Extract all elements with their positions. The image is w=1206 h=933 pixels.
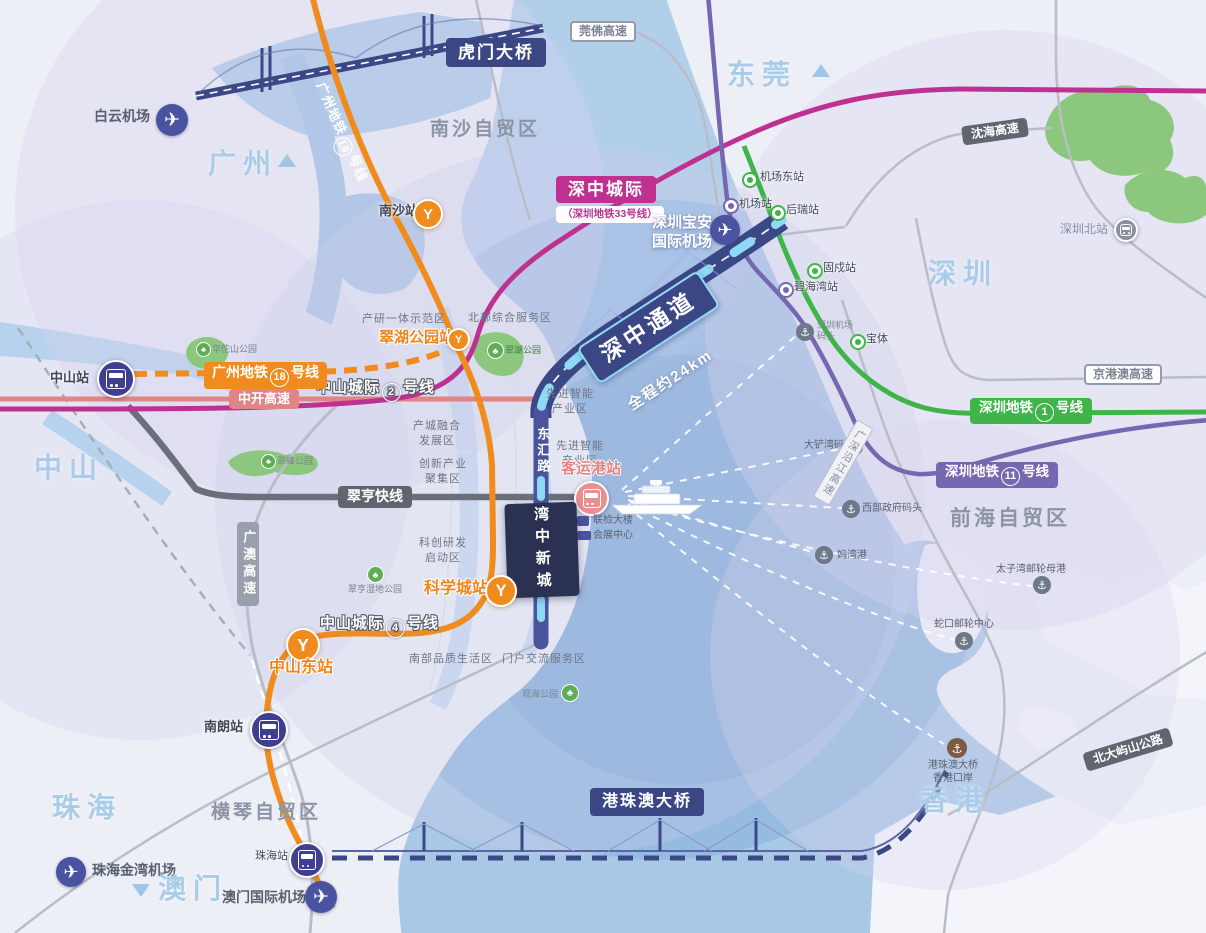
train-icon [1114,218,1138,242]
station-label-nanlang: 南朗站 [204,719,243,735]
landmark-label-convention-center: 会展中心 [593,530,633,543]
building-icon [577,531,591,540]
park-label-guanhai: 观海公园 [522,689,558,700]
station-label-airport: 机场站 [739,198,772,212]
jinggangao-expressway-badge: 京港澳高速 [1084,364,1162,385]
station-label-science-city: 科学城站 [424,579,488,599]
park-label-cuiheng-wetland: 翠亨湿地公园 [348,584,402,595]
guangao-expressway-badge: 广澳高速 [237,522,259,606]
zs-line4-label: 中山城际4号线 [320,615,439,638]
train-icon [574,481,609,516]
building-icon [577,516,589,526]
anchor-icon [955,632,973,650]
city-label-hongkong: 香港 [920,783,990,818]
metro-station-icon [723,198,739,214]
zs-line2-label: 中山城际2号线 [316,379,435,402]
station-label-bihaiwan: 碧海湾站 [794,281,838,295]
station-label-passenger-port: 客运港站 [561,460,621,479]
zone-label-qianhai-ftz: 前海自贸区 [950,506,1070,532]
port-label-mawan: 妈湾港 [837,550,867,563]
park-label-huatuoshan: 华佗山公园 [212,344,257,355]
humen-bridge-badge: 虎门大桥 [446,38,546,67]
station-label-baoti: 宝体 [866,333,888,347]
anchor-icon [842,500,860,518]
port-label-sz-airport-pier: 深圳机场码头 [817,320,853,343]
map-canvas: 虎门大桥 莞佛高速 东莞 沈海高速 深圳北站 深圳 白云机场 广州 南沙自贸区 … [0,0,1206,933]
hzmb-badge: 港珠澳大桥 [590,788,704,816]
triangle-icon [278,154,296,167]
district-label-scitech: 科创研发启动区 [419,536,467,566]
metro-station-icon [807,263,823,279]
tree-icon [487,342,504,359]
triangle-icon [812,64,830,77]
train-icon [289,842,325,878]
y-station-icon [447,328,470,351]
park-label-cuihu: 翠湖公园 [505,345,541,356]
district-label-gateway: 门户交流服务区 [502,652,586,667]
metro-station-icon [778,282,794,298]
zone-label-hengqin-ftz: 横琴自贸区 [211,801,321,825]
port-label-hzmb-hk: 港珠澳大桥香港口岸 [928,760,978,785]
metro-station-icon [742,172,758,188]
airport-label-baiyun: 白云机场 [94,108,150,126]
anchor-icon [796,323,814,341]
city-label-guangzhou: 广州 [208,146,278,181]
tree-icon [261,454,276,469]
district-label-adv-industry-1: 先进智能产业区 [546,387,594,417]
tree-icon [561,684,579,702]
train-icon [97,360,135,398]
station-label-gushu: 固戍站 [823,262,856,276]
park-label-cuifeng: 翠峰公园 [277,456,313,467]
gz-metro18-badge: 广州地铁18号线 [204,362,327,389]
district-label-south-life: 南部品质生活区 [409,652,493,667]
train-icon [250,711,288,749]
triangle-icon [132,884,150,897]
station-label-zhuhai: 珠海站 [255,850,288,864]
plane-icon [710,215,740,245]
city-label-macau: 澳门 [158,871,228,906]
plane-icon [156,104,188,136]
y-station-icon [286,628,320,662]
cuiheng-express-badge: 翠亨快线 [338,486,412,508]
anchor-icon [1033,576,1051,594]
port-label-shekou: 蛇口邮轮中心 [934,619,994,632]
district-label-north-service: 北部综合服务区 [468,311,552,326]
district-label-industry-city: 产城融合发展区 [413,419,461,449]
airport-label-szbaoan: 深圳宝安 国际机场 [652,214,712,252]
sz-metro1-badge: 深圳地铁1号线 [970,398,1092,424]
district-label-industry-research: 产研一体示范区 [362,312,446,327]
city-label-dongguan: 东莞 [727,57,797,92]
plane-icon [56,857,86,887]
metro-station-icon [770,205,786,221]
district-label-innovation: 创新产业聚集区 [419,457,467,487]
zhongkai-expressway-badge: 中开高速 [229,389,299,409]
station-label-zhongshan: 中山站 [50,370,89,386]
port-label-west-gov: 西部政府码头 [862,503,922,516]
station-label-shenzhen-north: 深圳北站 [1060,222,1108,237]
city-label-zhongshan: 中山 [34,450,104,485]
anchor-icon [947,738,967,758]
anchor-icon [815,546,833,564]
y-station-icon [413,199,443,229]
shenzhong-intercity-sub-badge: （深圳地铁33号线） [556,206,664,223]
y-station-icon [485,575,517,607]
station-label-airport-east: 机场东站 [760,171,804,185]
sz-metro11-badge: 深圳地铁11号线 [936,462,1058,488]
port-label-taiziwan: 太子湾邮轮母港 [996,564,1066,577]
plane-icon [305,881,337,913]
zone-label-nansha-ftz: 南沙自贸区 [430,118,540,142]
city-label-zhuhai: 珠海 [52,790,122,825]
landmark-label-joint-inspection: 联检大楼 [593,515,633,528]
tree-icon [367,566,384,583]
donghui-road-label: 东汇路 [534,427,550,475]
tree-icon [196,342,211,357]
airport-label-macau: 澳门国际机场 [222,889,306,907]
station-label-cuihu-park: 翠湖公园站 [379,329,454,348]
station-label-hourui: 后瑞站 [786,204,819,218]
station-label-zhongshan-east: 中山东站 [269,658,333,678]
guanfo-expressway-badge: 莞佛高速 [570,21,636,42]
city-label-shenzhen: 深圳 [928,256,998,291]
shenzhong-intercity-badge: 深中城际 [556,176,656,203]
